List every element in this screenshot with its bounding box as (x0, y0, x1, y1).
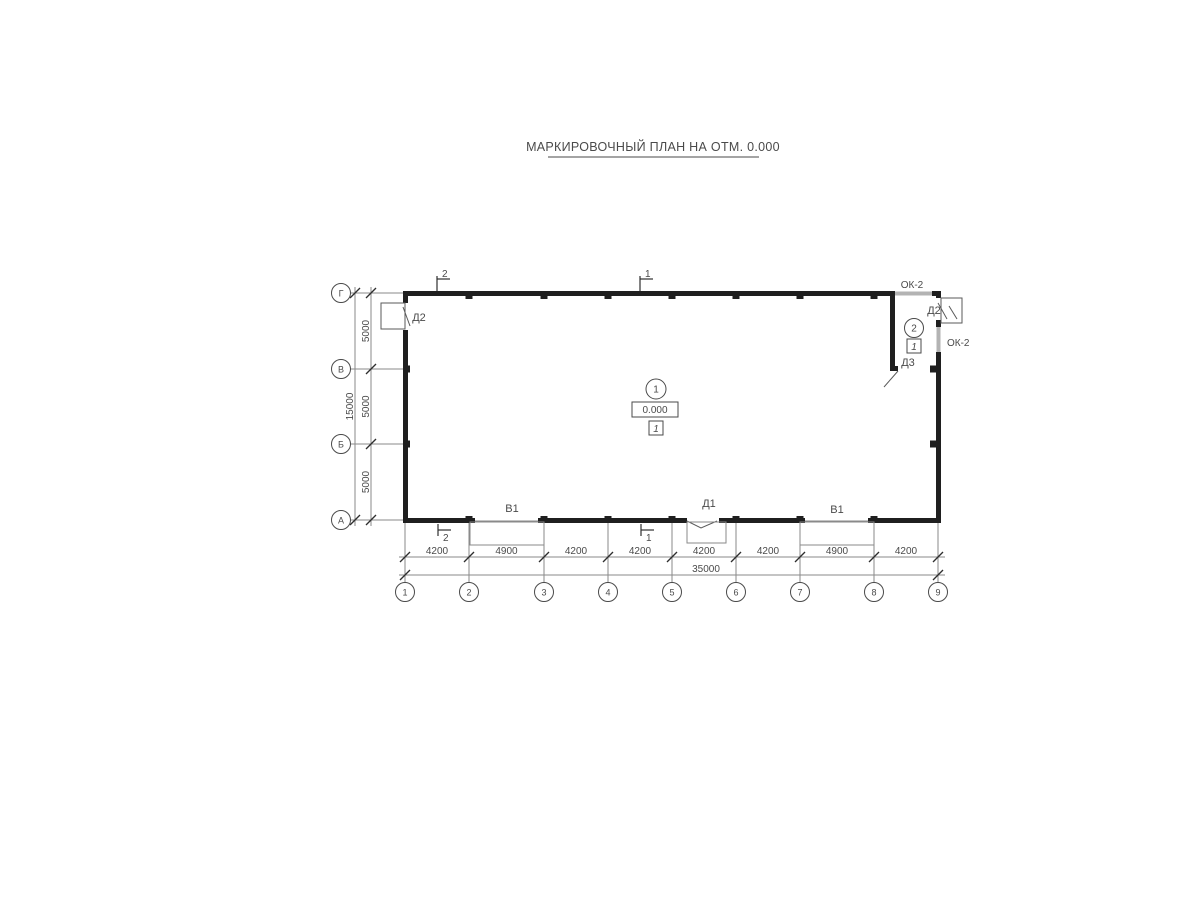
window-ok2-side-fill (937, 327, 941, 352)
col-label-8: 8 (871, 588, 876, 598)
dim-bottom-4: 4200 (693, 546, 716, 557)
room2-number: 2 (911, 324, 917, 335)
dim-left-0: 5000 (361, 319, 372, 342)
wall-annex-bottom-1 (890, 366, 898, 371)
col-label-1: 1 (402, 588, 407, 598)
col-label-3: 3 (541, 588, 546, 598)
section-1-bottom-label: 1 (646, 533, 652, 544)
dim-bottom-6: 4900 (826, 546, 849, 557)
col-label-9: 9 (935, 588, 940, 598)
row-label-g: Г (339, 289, 344, 299)
room1-number: 1 (653, 385, 659, 396)
column-grid-bubbles: 1 2 3 4 5 6 7 8 9 (396, 583, 948, 602)
window-ok2-side-label: ОК-2 (947, 338, 970, 349)
column-marks (403, 292, 937, 523)
dim-bottom-2: 4200 (565, 546, 588, 557)
door-d2-left-porch (381, 303, 405, 329)
room2-type: 1 (911, 342, 917, 353)
dim-left-2: 5000 (361, 470, 372, 493)
dim-left-total: 15000 (345, 392, 356, 420)
page-title: МАРКИРОВОЧНЫЙ ПЛАН НА ОТМ. 0.000 (526, 139, 780, 154)
door-d2-right-label: Д2 (927, 305, 941, 317)
door-d3-label: Д3 (901, 357, 915, 369)
wall-bottom-2 (538, 518, 687, 523)
wall-right-1 (936, 291, 941, 298)
window-ok2-top-fill (895, 292, 932, 296)
door-d3-leaf (884, 371, 898, 387)
row-label-b: Б (338, 440, 344, 450)
wall-annex-left (890, 291, 895, 371)
door-d2-right-leader (949, 306, 957, 319)
col-label-6: 6 (733, 588, 738, 598)
col-label-2: 2 (466, 588, 471, 598)
room1-elevation: 0.000 (642, 405, 667, 416)
left-dimensions: 5000 5000 5000 15000 (345, 287, 403, 526)
gate-b1-left-apron (470, 522, 544, 545)
door-d2-left-label: Д2 (412, 312, 426, 324)
building-walls (403, 291, 941, 523)
opening-labels: Д2 Д2 Д3 Д1 В1 В1 ОК-2 ОК-2 (412, 280, 970, 516)
door-d1-label: Д1 (702, 498, 716, 510)
wall-bottom-3 (719, 518, 805, 523)
door-d2-left-leaf (403, 307, 410, 326)
dim-bottom-7: 4200 (895, 546, 918, 557)
gate-b1-right-apron (800, 522, 874, 545)
gate-b1-left-label: В1 (505, 503, 518, 515)
col-label-7: 7 (797, 588, 802, 598)
gate-b1-right-label: В1 (830, 504, 843, 516)
drawing-canvas: МАРКИРОВОЧНЫЙ ПЛАН НА ОТМ. 0.000 (0, 0, 1200, 900)
bottom-dimensions: 4200 4900 4200 4200 4200 4200 4900 4200 … (399, 523, 945, 583)
door-symbols (381, 298, 962, 545)
wall-left-2 (403, 330, 408, 523)
dim-bottom-3: 4200 (629, 546, 652, 557)
room-markers: 1 0.000 1 2 1 (632, 319, 924, 436)
wall-bottom-1 (403, 518, 475, 523)
window-ok2-top-label: ОК-2 (901, 280, 924, 291)
section-2-bottom-label: 2 (443, 533, 449, 544)
dim-bottom-1: 4900 (495, 546, 518, 557)
dim-bottom-total: 35000 (692, 564, 720, 575)
row-label-v: В (338, 365, 344, 375)
wall-right-3 (936, 352, 941, 523)
dim-bottom-0: 4200 (426, 546, 449, 557)
section-flags: 2 1 2 1 (437, 269, 654, 544)
col-label-5: 5 (669, 588, 674, 598)
wall-top-left (403, 291, 895, 296)
wall-bottom-4 (868, 518, 941, 523)
dim-left-1: 5000 (361, 395, 372, 418)
wall-right-2 (936, 320, 941, 327)
dim-bottom-5: 4200 (757, 546, 780, 557)
room1-type: 1 (653, 424, 659, 435)
col-label-4: 4 (605, 588, 610, 598)
section-2-top-label: 2 (442, 269, 448, 280)
wall-left-1 (403, 291, 408, 303)
floor-plan-svg: МАРКИРОВОЧНЫЙ ПЛАН НА ОТМ. 0.000 (0, 0, 1200, 900)
row-label-a: А (338, 516, 344, 526)
section-1-top-label: 1 (645, 269, 651, 280)
